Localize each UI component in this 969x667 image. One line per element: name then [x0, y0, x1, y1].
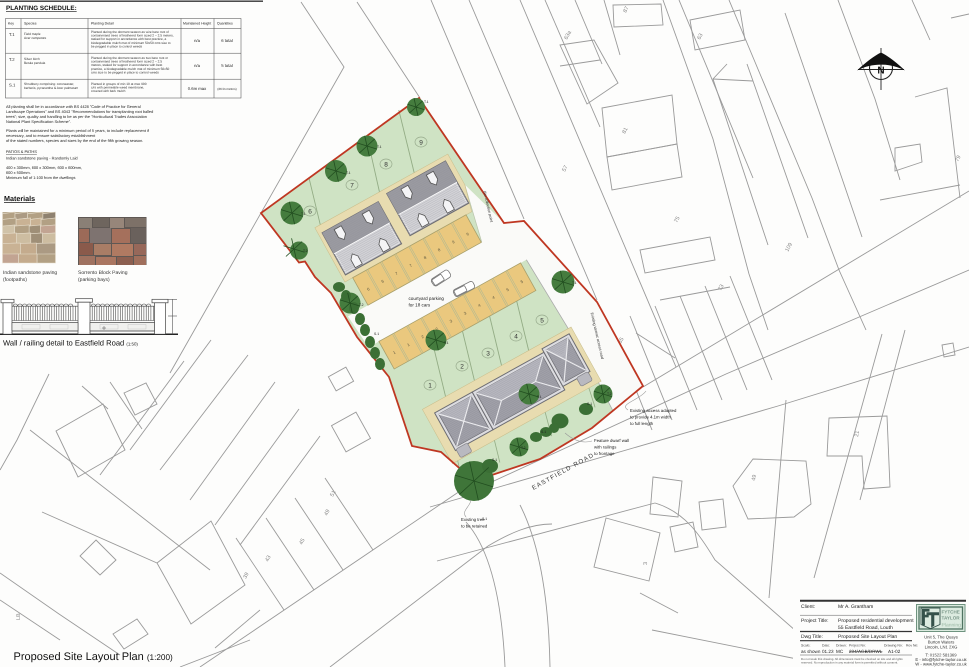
svg-text:to provide 4.1m width: to provide 4.1m width — [630, 415, 671, 420]
svg-text:of the stated numbers, species: of the stated numbers, species and sizes… — [6, 138, 143, 143]
svg-text:Rev No:: Rev No: — [906, 644, 918, 648]
svg-text:T.1: T.1 — [444, 341, 449, 345]
svg-text:Project Title:: Project Title: — [801, 618, 829, 624]
svg-text:Drawing No:: Drawing No: — [884, 644, 903, 648]
svg-text:Date:: Date: — [822, 644, 830, 648]
svg-text:Lincoln, LN1 2XG: Lincoln, LN1 2XG — [925, 645, 958, 650]
svg-text:Acer campestre: Acer campestre — [24, 36, 47, 40]
svg-text:Proposed Site Layout Plan: Proposed Site Layout Plan — [838, 634, 897, 640]
svg-text:21: 21 — [854, 430, 861, 437]
svg-text:to full length: to full length — [630, 421, 654, 426]
svg-text:T.2: T.2 — [607, 392, 612, 396]
svg-text:N: N — [877, 66, 884, 77]
svg-text:T.1: T.1 — [346, 171, 351, 175]
svg-text:T.2: T.2 — [359, 303, 364, 307]
svg-text:Proposed Site Layout Plan (1:2: Proposed Site Layout Plan (1:200) — [14, 651, 174, 663]
svg-text:T.1: T.1 — [424, 100, 429, 104]
svg-text:0.6m max: 0.6m max — [188, 86, 207, 91]
svg-text:National Plant Specification S: National Plant Specification Scheme". — [6, 119, 71, 124]
svg-text:covered with bark mulch: covered with bark mulch — [91, 89, 126, 93]
svg-text:(parking bays): (parking bays) — [78, 277, 110, 283]
svg-text:Indian sandstone paving: Indian sandstone paving — [3, 270, 57, 276]
svg-text:Minimum fall of 1:100 from th: Minimum fall of 1:100 from the dwellings — [6, 175, 75, 180]
svg-text:3: 3 — [643, 562, 649, 565]
svg-text:T.1: T.1 — [301, 212, 306, 216]
svg-text:Scale:: Scale: — [801, 644, 810, 648]
svg-text:01.23: 01.23 — [822, 649, 834, 654]
svg-text:cms size to be pegged in place: cms size to be pegged in place to contro… — [91, 70, 159, 74]
svg-text:Existing access adapted: Existing access adapted — [630, 408, 677, 413]
svg-text:3: 3 — [486, 350, 490, 357]
svg-text:T.2: T.2 — [521, 446, 526, 450]
svg-text:1: 1 — [428, 382, 432, 389]
svg-text:8: 8 — [384, 161, 388, 168]
svg-text:Mr A. Grantham: Mr A. Grantham — [838, 604, 873, 610]
svg-text:T.1: T.1 — [537, 395, 542, 399]
svg-text:to frontage: to frontage — [594, 451, 615, 456]
svg-text:Dwg Title:: Dwg Title: — [801, 634, 823, 640]
svg-text:courtyard parking: courtyard parking — [409, 296, 445, 301]
svg-text:T.1: T.1 — [572, 281, 577, 285]
svg-text:S.1: S.1 — [492, 458, 497, 462]
svg-text:T.1: T.1 — [377, 145, 382, 149]
svg-text:(footpaths): (footpaths) — [3, 277, 27, 283]
svg-text:Project No:: Project No: — [849, 644, 866, 648]
svg-text:T.2: T.2 — [9, 57, 15, 62]
svg-text:with railings: with railings — [594, 445, 616, 450]
svg-text:S.1: S.1 — [482, 517, 487, 521]
svg-text:5 total: 5 total — [221, 63, 232, 68]
svg-text:S.1: S.1 — [374, 332, 379, 336]
svg-text:Materials: Materials — [4, 194, 35, 203]
svg-text:T.2: T.2 — [303, 249, 308, 253]
svg-text:2: 2 — [460, 363, 464, 370]
svg-text:234/AGB/DRWL: 234/AGB/DRWL — [849, 649, 883, 654]
svg-text:Drawn:: Drawn: — [836, 644, 847, 648]
svg-text:FYTCHE: FYTCHE — [942, 610, 960, 615]
svg-text:reserved. No reproduction in a: reserved. No reproduction in any materia… — [801, 661, 898, 665]
svg-text:5: 5 — [540, 317, 544, 324]
svg-text:7: 7 — [350, 182, 354, 189]
svg-text:Proposed residential developme: Proposed residential development — [838, 618, 914, 624]
svg-text:Species: Species — [24, 22, 37, 26]
svg-text:PATIOS & PATHS: PATIOS & PATHS — [6, 149, 37, 154]
svg-text:n/a: n/a — [194, 63, 200, 68]
svg-text:49: 49 — [751, 474, 758, 481]
svg-text:be pegged in place to control: be pegged in place to control weeds — [91, 44, 142, 48]
svg-text:for 18 cars: for 18 cars — [409, 303, 431, 308]
svg-text:Quantities: Quantities — [217, 22, 233, 26]
svg-text:6 total: 6 total — [221, 38, 232, 43]
svg-text:to be retained: to be retained — [461, 524, 488, 529]
svg-text:Key: Key — [8, 22, 14, 26]
svg-text:W - www.fytche-taylor.co.uk: W - www.fytche-taylor.co.uk — [915, 662, 967, 667]
svg-text:berberis, pyracantha & Acer pa: berberis, pyracantha & Acer palmatum — [24, 86, 79, 90]
svg-text:6: 6 — [308, 208, 312, 215]
svg-text:S.1: S.1 — [9, 83, 16, 88]
svg-text:MC: MC — [836, 649, 844, 654]
svg-text:55 Eastfield Road, Louth: 55 Eastfield Road, Louth — [838, 625, 893, 631]
svg-text:Betula pendula: Betula pendula — [24, 61, 45, 65]
svg-text:Wall / railing detail to Eastf: Wall / railing detail to Eastfield Road … — [3, 339, 138, 348]
svg-text:TAYLOR: TAYLOR — [942, 616, 961, 621]
svg-text:Planning: Planning — [942, 623, 962, 629]
svg-text:n/a: n/a — [194, 38, 200, 43]
svg-text:9: 9 — [419, 139, 423, 146]
svg-text:(26 lin metres): (26 lin metres) — [217, 87, 236, 91]
svg-text:Feature dwarf wall: Feature dwarf wall — [594, 438, 629, 443]
svg-text:S.1: S.1 — [587, 402, 592, 406]
svg-text:PLANTING SCHEDULE:: PLANTING SCHEDULE: — [6, 5, 77, 12]
svg-text:4: 4 — [514, 333, 518, 340]
svg-text:Planting Detail: Planting Detail — [91, 22, 114, 26]
svg-text:Maintained Height: Maintained Height — [183, 22, 211, 26]
svg-text:Sorrento Block Paving: Sorrento Block Paving — [78, 270, 128, 276]
svg-text:A1-02: A1-02 — [888, 649, 901, 654]
svg-text:LB: LB — [16, 613, 22, 620]
svg-text:S.1: S.1 — [541, 430, 546, 434]
svg-text:Client:: Client: — [801, 604, 815, 610]
svg-text:Indian sandstone paving - Rand: Indian sandstone paving - Randomly Laid — [6, 156, 78, 161]
svg-text:T.1: T.1 — [9, 32, 15, 37]
svg-text:as shown: as shown — [801, 649, 821, 654]
